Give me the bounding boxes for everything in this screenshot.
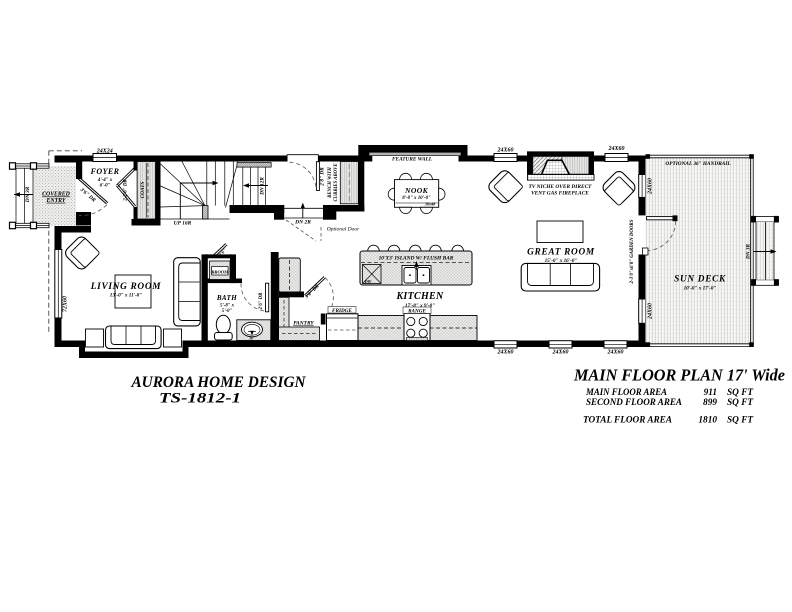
svg-text:SQ FT: SQ FT xyxy=(727,388,753,398)
svg-text:SECOND FLOOR AREA: SECOND FLOOR AREA xyxy=(586,398,682,408)
svg-text:5'-8" x: 5'-8" x xyxy=(220,303,235,308)
svg-text:TS-1812-1: TS-1812-1 xyxy=(159,391,241,407)
svg-text:24X60: 24X60 xyxy=(496,349,513,355)
svg-text:911: 911 xyxy=(704,388,717,398)
svg-text:2-2'6" DR: 2-2'6" DR xyxy=(124,179,129,202)
svg-text:24X60: 24X60 xyxy=(648,178,654,195)
svg-text:OPTIONAL 36" HANDRAIL: OPTIONAL 36" HANDRAIL xyxy=(665,161,730,167)
svg-text:KITCHEN: KITCHEN xyxy=(395,291,444,302)
svg-text:DN 12R: DN 12R xyxy=(260,177,266,196)
svg-text:TV NICHE OVER DIRECT: TV NICHE OVER DIRECT xyxy=(529,184,593,190)
svg-text:2'6" DR: 2'6" DR xyxy=(259,292,264,310)
svg-text:36": 36" xyxy=(248,337,255,341)
svg-text:TOTAL FLOOR AREA: TOTAL FLOOR AREA xyxy=(583,416,672,426)
svg-text:MAIN FLOOR AREA: MAIN FLOOR AREA xyxy=(585,388,667,398)
svg-text:LIVING ROOM: LIVING ROOM xyxy=(90,282,161,292)
svg-text:COATS: COATS xyxy=(140,182,146,199)
svg-text:VENT GAS FIREPLACE: VENT GAS FIREPLACE xyxy=(531,190,589,196)
svg-text:72X60: 72X60 xyxy=(63,296,69,312)
svg-text:5'-0": 5'-0" xyxy=(222,309,233,314)
svg-text:MAIN FLOOR PLAN 17' Wide: MAIN FLOOR PLAN 17' Wide xyxy=(573,366,785,385)
svg-text:6'-0": 6'-0" xyxy=(100,184,111,189)
svg-text:24X60: 24X60 xyxy=(648,303,654,320)
svg-text:COVERED: COVERED xyxy=(42,192,71,198)
svg-text:AURORA HOME DESIGN: AURORA HOME DESIGN xyxy=(131,374,307,391)
svg-text:DW: DW xyxy=(364,279,372,284)
svg-text:1810: 1810 xyxy=(698,416,717,426)
svg-text:2'8" DR: 2'8" DR xyxy=(320,167,326,187)
svg-text:FOYER: FOYER xyxy=(90,167,120,176)
svg-text:FRIDGE: FRIDGE xyxy=(332,308,352,314)
svg-text:24X60: 24X60 xyxy=(607,146,624,152)
svg-text:DN 3R: DN 3R xyxy=(746,243,752,260)
svg-text:PANTRY: PANTRY xyxy=(293,321,314,327)
svg-text:899: 899 xyxy=(703,398,717,408)
svg-text:BATH: BATH xyxy=(216,294,237,302)
svg-text:Optional Door: Optional Door xyxy=(327,227,360,233)
svg-text:GREAT ROOM: GREAT ROOM xyxy=(527,248,595,258)
svg-text:SUN DECK: SUN DECK xyxy=(674,275,726,285)
svg-text:13'-0" x 11'-8": 13'-0" x 11'-8" xyxy=(110,293,143,299)
svg-text:10'X3' ISLAND W/ FLUSH BAR: 10'X3' ISLAND W/ FLUSH BAR xyxy=(379,256,454,262)
svg-text:NOOK: NOOK xyxy=(404,186,429,195)
svg-text:DN 2R: DN 2R xyxy=(294,220,311,226)
svg-text:DN 3R: DN 3R xyxy=(25,186,31,203)
svg-text:SQ FT: SQ FT xyxy=(727,398,753,408)
svg-text:SQ FT: SQ FT xyxy=(727,416,753,426)
svg-text:BROOM: BROOM xyxy=(210,269,229,274)
svg-text:FEATURE WALL: FEATURE WALL xyxy=(392,157,432,163)
svg-text:8'-0" x 10'-0": 8'-0" x 10'-0" xyxy=(402,196,431,201)
svg-text:CUBBIES ABOVE: CUBBIES ABOVE xyxy=(334,163,339,201)
svg-text:10'-0" x 17'-0": 10'-0" x 17'-0" xyxy=(684,286,717,292)
svg-text:24X60: 24X60 xyxy=(551,349,568,355)
svg-text:4'-4" x: 4'-4" x xyxy=(97,178,113,183)
svg-text:BENCH WITH: BENCH WITH xyxy=(328,167,333,199)
svg-text:RANGE: RANGE xyxy=(408,308,426,314)
svg-text:30x48: 30x48 xyxy=(424,202,436,207)
svg-text:ENTRY: ENTRY xyxy=(46,198,66,204)
svg-text:24X60: 24X60 xyxy=(496,148,513,154)
svg-text:24X60: 24X60 xyxy=(606,349,623,355)
svg-text:UP 16R: UP 16R xyxy=(174,221,192,227)
svg-text:2-3'0"x6'8" GARDEN DOORS: 2-3'0"x6'8" GARDEN DOORS xyxy=(630,219,635,284)
svg-text:24X24: 24X24 xyxy=(96,149,113,155)
